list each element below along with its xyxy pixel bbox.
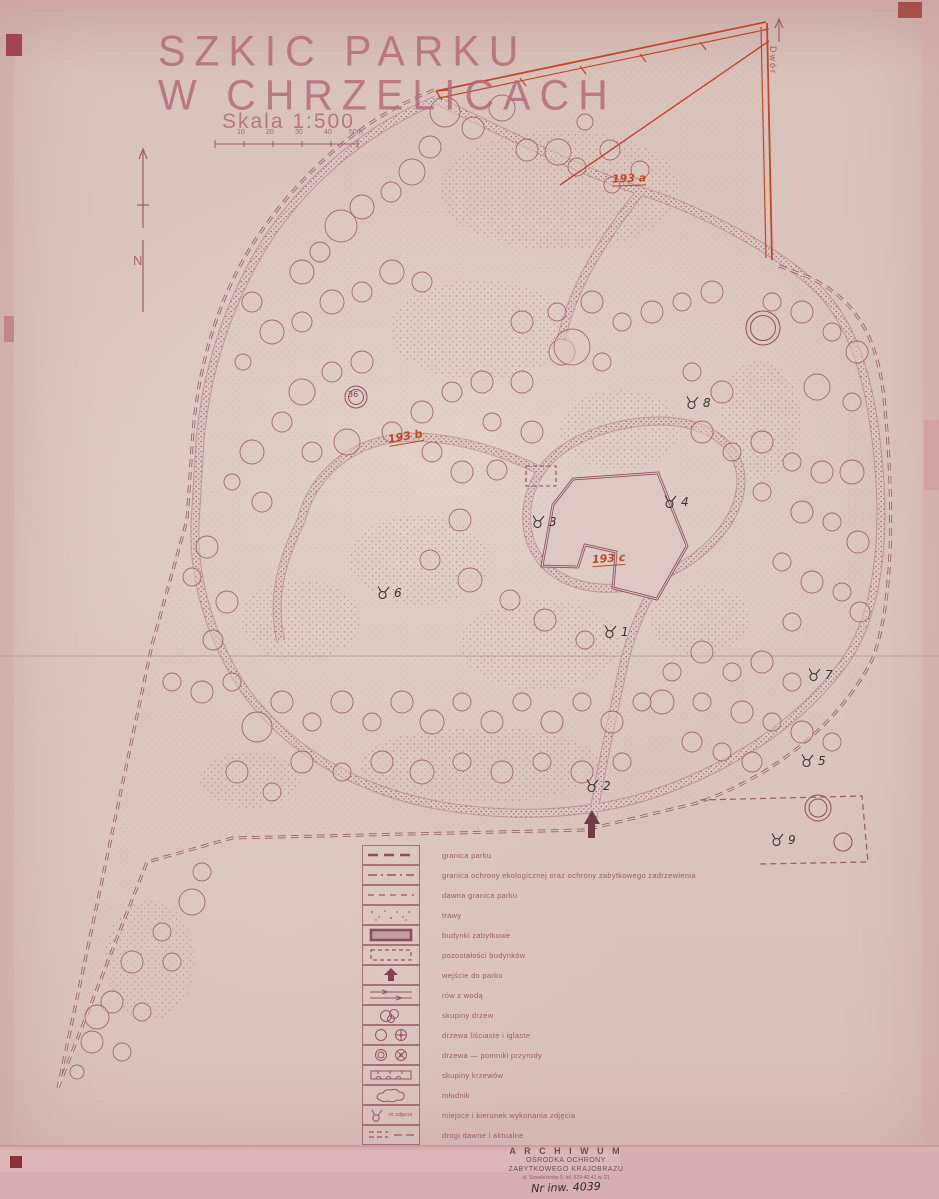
roads-dash-symbol (362, 1125, 420, 1145)
legend-row-old-boundary: dawna granica parku (362, 885, 772, 905)
photo-marker-5: 5 (801, 753, 826, 767)
dash-line-symbol (362, 885, 420, 905)
north-label: N (133, 253, 142, 268)
legend-row-historic-buildings: budynki zabytkowe (362, 925, 772, 945)
legend-row-tree-groups: skupiny drzew (362, 1005, 772, 1025)
photo-marker-4: 4 (664, 494, 689, 508)
edge-direction-arrow (775, 19, 783, 42)
photo-marker-8: 8 (686, 395, 711, 409)
legend-row-entrance: wejście do parku (362, 965, 772, 985)
photo-location-symbol: nr zdjęcia (362, 1105, 420, 1125)
photo-marker-1: 1 (604, 624, 629, 638)
dash-dot-line-symbol (362, 865, 420, 885)
photo-marker-7: 7 (808, 667, 833, 681)
water-ditch-symbol (362, 985, 420, 1005)
map-title-line1: SZKIC PARKU (158, 27, 527, 76)
legend-row-monument-trees: drzewa — pomniki przyrody (362, 1045, 772, 1065)
legend-row-park-boundary: granica parku (362, 845, 772, 865)
legend-row-photo-location: nr zdjęcia miejsce i kierunek wykonania … (362, 1105, 772, 1125)
stamp-org-line1: OŚRODKA OCHRONY (493, 1157, 639, 1166)
legend-row-ditch: rów z wodą (362, 985, 772, 1005)
north-arrow (137, 149, 149, 312)
photo-stand-icon (808, 667, 824, 681)
legend-row-roads: drogi dawne i aktualne (362, 1125, 772, 1145)
photo-stand-icon (664, 494, 680, 508)
red-area-label-193a: 193 a (612, 171, 647, 186)
shrub-group-symbol (362, 1065, 420, 1085)
photo-stand-icon (586, 778, 602, 792)
filled-rect-symbol (362, 925, 420, 945)
scale-bar (215, 140, 359, 148)
boundary-bold-dash-symbol (362, 845, 420, 865)
scale-tick-10: 10 (237, 129, 245, 136)
tree-tag-36: 36 (348, 390, 358, 399)
photo-marker-3: 3 (532, 514, 557, 528)
photo-stand-icon (801, 753, 817, 767)
photo-stand-icon (532, 514, 548, 528)
dashed-rect-symbol (362, 945, 420, 965)
legend-row-young-stand: młodnik (362, 1085, 772, 1105)
photo-stand-icon (604, 624, 620, 638)
photo-marker-2: 2 (586, 778, 611, 792)
legend-row-trees: drzewa liściaste i iglaste (362, 1025, 772, 1045)
photo-marker-9: 9 (771, 832, 796, 846)
stipple-symbol (362, 905, 420, 925)
tree-group-symbol (362, 1005, 420, 1025)
stamp-inventory-number: Nr inw. 4039 (493, 1178, 639, 1197)
scale-tick-50: 50m (349, 129, 363, 136)
scale-tick-20: 20 (266, 129, 274, 136)
stamp-title: A R C H I W U M (493, 1146, 639, 1157)
scanned-park-plan: SZKIC PARKU W CHRZELICACH Skala 1:500 10… (0, 0, 939, 1199)
photo-number-note: nr zdjęcia (389, 1112, 413, 1118)
red-area-label-193c: 193 c (592, 551, 626, 567)
photo-marker-6: 6 (377, 585, 402, 599)
entrance-arrow-symbol (362, 965, 420, 985)
legend-row-building-remains: pozostałości budynków (362, 945, 772, 965)
legend-row-eco-boundary: granica ochrony ekologicznej oraz ochron… (362, 865, 772, 885)
edge-label-dwor: Dwór (768, 46, 778, 75)
photo-stand-icon (771, 832, 787, 846)
deciduous-coniferous-symbol (362, 1025, 420, 1045)
archive-stamp: A R C H I W U M OŚRODKA OCHRONY ZABYTKOW… (493, 1146, 639, 1195)
young-stand-cloud-symbol (362, 1085, 420, 1105)
scale-tick-40: 40 (324, 129, 332, 136)
photo-stand-icon (377, 585, 393, 599)
photo-stand-icon (686, 395, 702, 409)
legend-row-grass: trawy (362, 905, 772, 925)
monument-tree-symbol (362, 1045, 420, 1065)
legend-row-shrubs: skupiny krzewów (362, 1065, 772, 1085)
scale-tick-30: 30 (295, 129, 303, 136)
stamp-org-line2: ZABYTKOWEGO KRAJOBRAZU (493, 1166, 639, 1175)
legend: granica parku granica ochrony ekologiczn… (362, 845, 772, 1145)
